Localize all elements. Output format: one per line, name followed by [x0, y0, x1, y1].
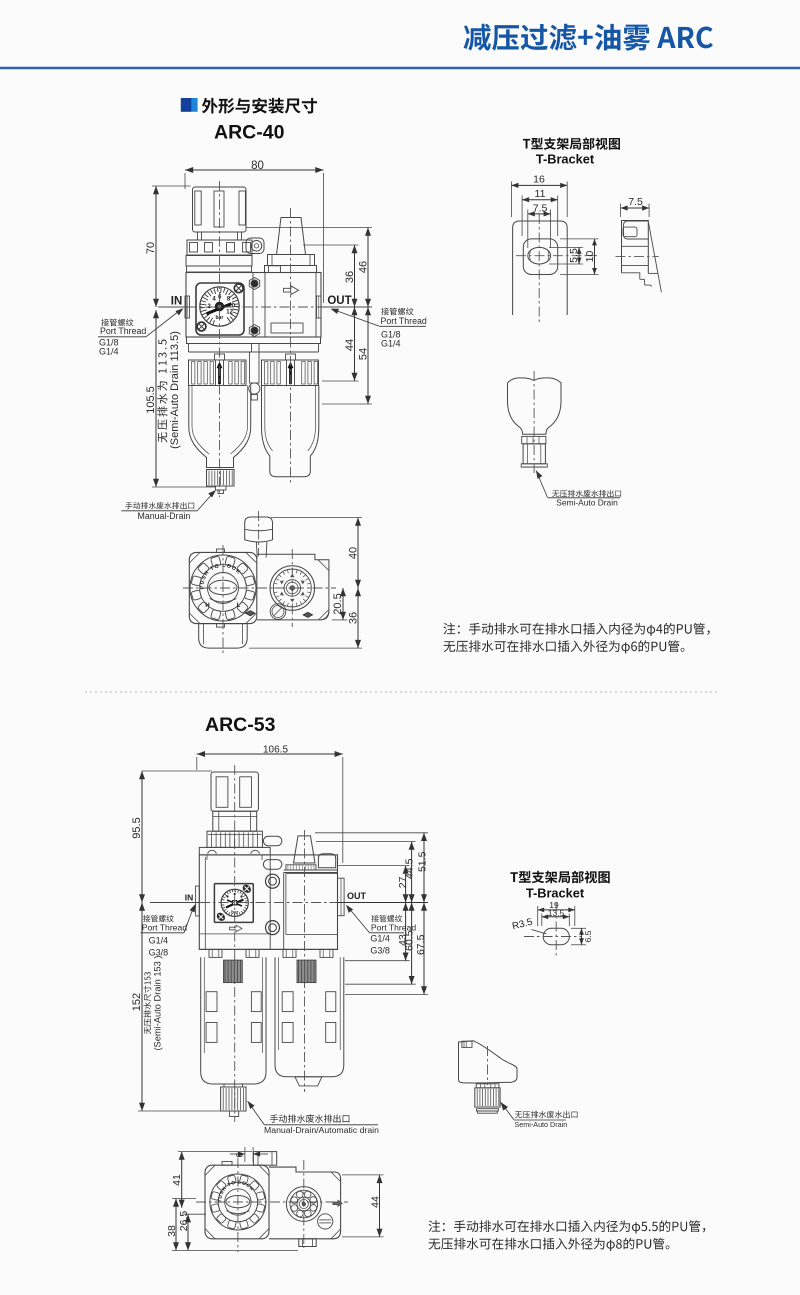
svg-text:44: 44 — [370, 1196, 382, 1208]
svg-text:OUT: OUT — [327, 295, 351, 307]
svg-text:38: 38 — [166, 1225, 178, 1237]
svg-text:T-Bracket: T-Bracket — [536, 152, 595, 167]
svg-text:Port Thread: Port Thread — [371, 923, 416, 933]
svg-text:12: 12 — [226, 310, 233, 316]
svg-text:26.5: 26.5 — [178, 1211, 190, 1232]
svg-text:G1/4: G1/4 — [370, 934, 390, 944]
svg-text:Semi-Auto Drain: Semi-Auto Drain — [556, 497, 618, 507]
svg-text:44.5: 44.5 — [404, 858, 416, 879]
svg-text:Manual-Drain: Manual-Drain — [138, 511, 191, 521]
svg-text:G3/8: G3/8 — [149, 948, 169, 958]
svg-text:Port Thread: Port Thread — [100, 326, 146, 336]
svg-text:IN: IN — [171, 296, 183, 308]
svg-text:G3/8: G3/8 — [370, 946, 390, 956]
svg-text:G1/4: G1/4 — [381, 339, 401, 349]
svg-text:10: 10 — [584, 251, 596, 263]
svg-text:95.5: 95.5 — [131, 817, 143, 838]
svg-text:ARC-40: ARC-40 — [214, 122, 285, 144]
svg-text:G1/4: G1/4 — [149, 936, 169, 946]
svg-text:Port Thread: Port Thread — [142, 923, 187, 933]
svg-text:G1/4: G1/4 — [99, 347, 119, 357]
svg-text:70: 70 — [145, 242, 157, 254]
svg-text:67.5: 67.5 — [415, 934, 427, 955]
svg-text:(Semi-Auto Drain 153 ): (Semi-Auto Drain 153 ) — [153, 955, 163, 1050]
svg-text:PUSH TO LOCK: PUSH TO LOCK — [199, 563, 241, 590]
svg-text:Port Thread: Port Thread — [381, 316, 427, 326]
svg-text:60.5: 60.5 — [404, 930, 416, 951]
svg-text:152: 152 — [131, 993, 143, 1011]
svg-text:7.5: 7.5 — [628, 196, 643, 208]
svg-text:80: 80 — [251, 160, 264, 172]
svg-text:IN: IN — [185, 893, 194, 903]
svg-text:44: 44 — [344, 339, 356, 351]
svg-text:41: 41 — [171, 1174, 183, 1186]
svg-text:51.5: 51.5 — [416, 851, 428, 872]
svg-text:6.5: 6.5 — [583, 930, 593, 942]
svg-text:Manual-Drain/Automatic drain: Manual-Drain/Automatic drain — [264, 1125, 379, 1135]
svg-text:R3.5: R3.5 — [511, 917, 534, 933]
svg-text:Semi-Auto Drain: Semi-Auto Drain — [515, 1120, 568, 1129]
svg-text:7.5: 7.5 — [533, 203, 548, 215]
svg-text:46: 46 — [358, 261, 370, 273]
svg-text:16: 16 — [533, 174, 545, 186]
svg-text:54: 54 — [358, 348, 370, 360]
svg-text:11: 11 — [535, 188, 546, 200]
svg-text:40: 40 — [348, 547, 360, 559]
svg-text:H: H — [205, 603, 209, 609]
svg-text:OUT: OUT — [347, 891, 367, 901]
svg-text:(Semi-Auto Drain 113.5): (Semi-Auto Drain 113.5) — [169, 331, 181, 449]
svg-text:ARC-53: ARC-53 — [205, 714, 276, 736]
svg-text:T-Bracket: T-Bracket — [526, 886, 585, 901]
svg-text:106.5: 106.5 — [263, 745, 288, 756]
svg-text:20.5: 20.5 — [332, 593, 344, 614]
svg-text:105.5: 105.5 — [145, 386, 157, 414]
svg-text:5.5: 5.5 — [568, 248, 580, 263]
svg-text:36: 36 — [348, 612, 360, 624]
svg-text:36: 36 — [344, 271, 356, 283]
svg-text:6: 6 — [235, 1152, 246, 1157]
svg-text:L: L — [237, 603, 241, 609]
